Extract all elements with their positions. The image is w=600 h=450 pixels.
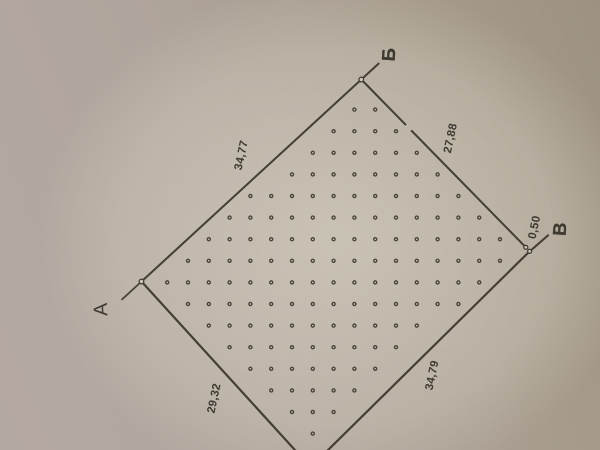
svg-text:29,32: 29,32 [206, 382, 224, 414]
svg-text:0,50: 0,50 [527, 215, 544, 241]
svg-text:А: А [90, 303, 112, 317]
svg-text:27,88: 27,88 [442, 122, 460, 154]
svg-text:34,79: 34,79 [424, 359, 442, 391]
svg-text:Б: Б [378, 47, 400, 62]
svg-text:В: В [549, 222, 571, 237]
svg-text:34,77: 34,77 [233, 139, 251, 171]
